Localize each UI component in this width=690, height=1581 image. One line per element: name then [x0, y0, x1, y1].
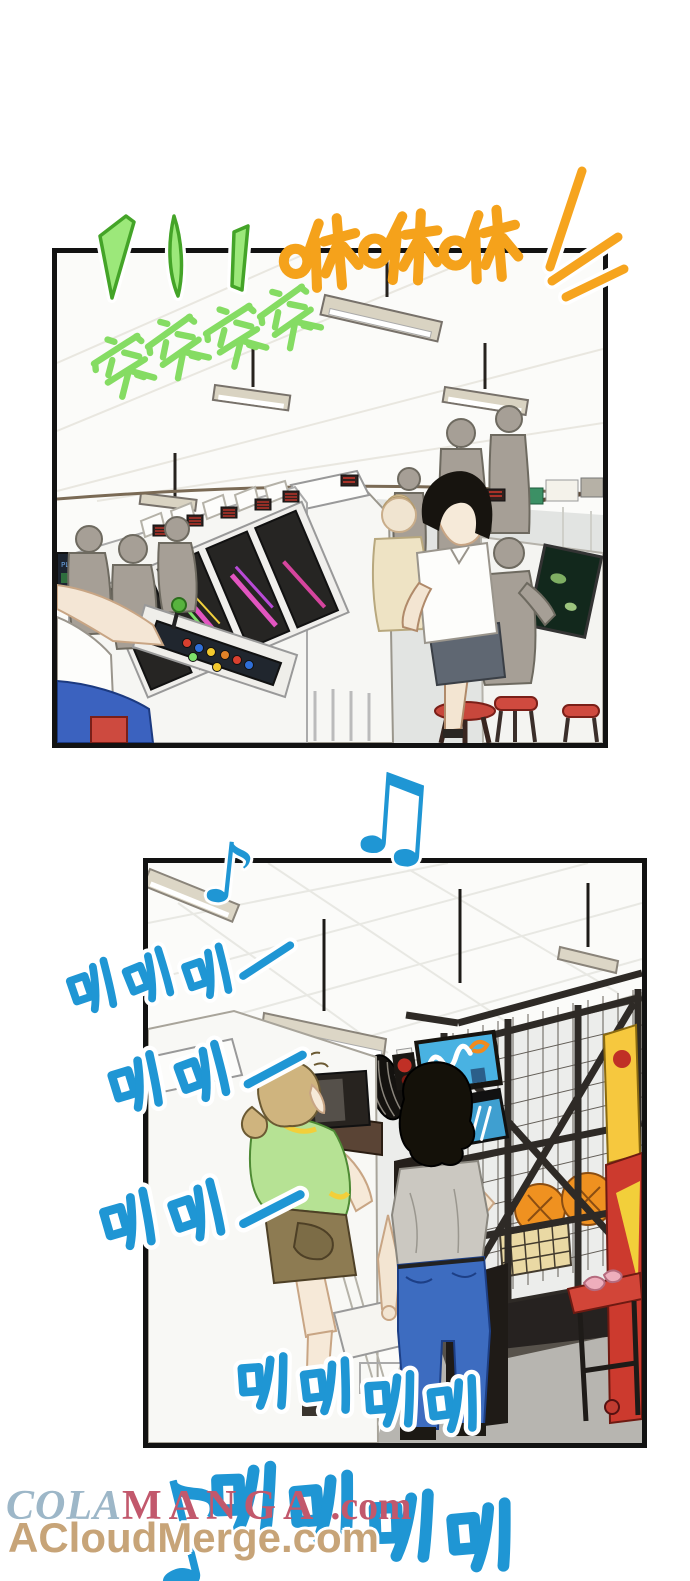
sfx-whoosh — [276, 201, 520, 297]
impact-slashes-green-icon — [86, 206, 266, 306]
ceiling-light-rods — [324, 883, 588, 1011]
music-note-icon: ♪ — [198, 829, 260, 918]
watermark-acloudmerge: ACloudMerge.com — [8, 1514, 379, 1562]
impact-slashes-orange-icon — [520, 165, 640, 315]
yellow-sign — [604, 1025, 640, 1163]
fluorescent-light — [321, 295, 442, 341]
fluorescent-light — [558, 947, 618, 973]
fluorescent-light — [213, 385, 290, 410]
comic-page: 5 — [0, 0, 690, 1581]
sfx-horn-row-3 — [96, 1171, 311, 1257]
music-note-beamed-icon: ♫ — [338, 757, 446, 876]
